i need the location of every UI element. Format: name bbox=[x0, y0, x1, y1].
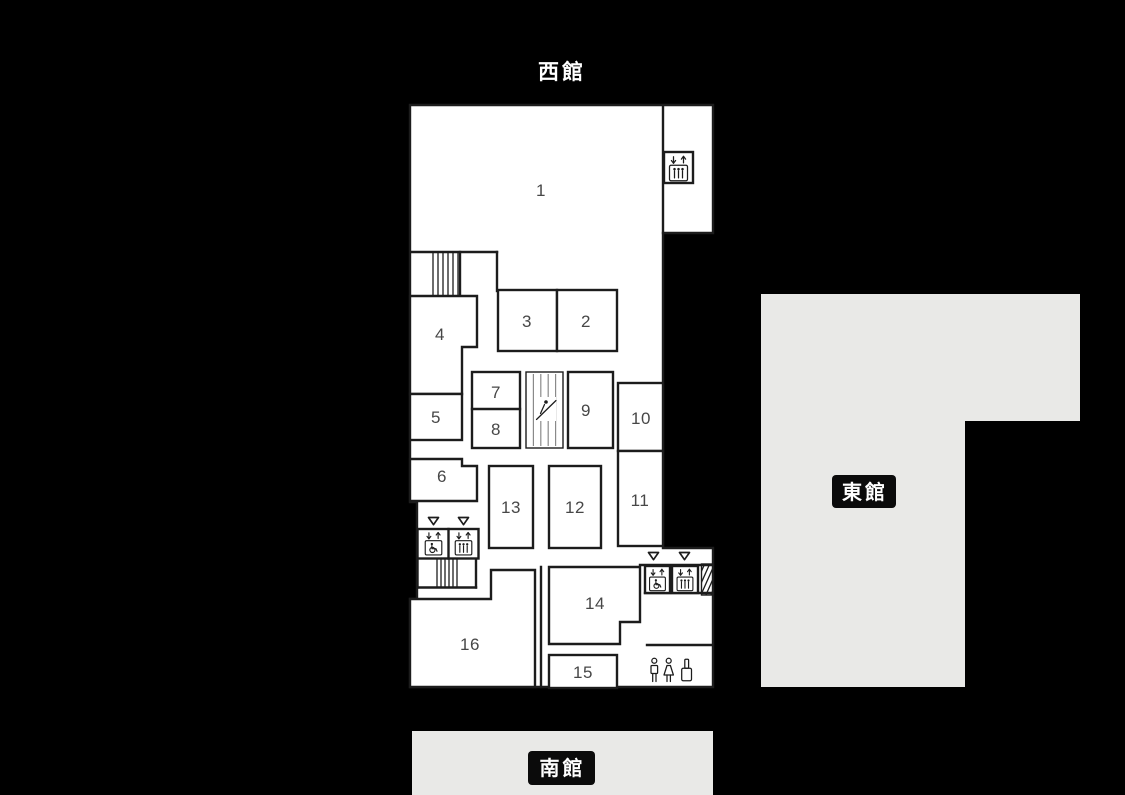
room-10-label: 10 bbox=[631, 409, 651, 428]
room-1-label: 1 bbox=[536, 181, 546, 200]
room-15-label: 15 bbox=[573, 663, 593, 682]
north-elevator bbox=[664, 152, 693, 183]
room-7-label: 7 bbox=[491, 383, 501, 402]
accessible-elevator-box bbox=[645, 566, 670, 593]
room-13-label: 13 bbox=[501, 498, 521, 517]
south-building-label: 南館 bbox=[540, 756, 586, 780]
south-building: 南館 bbox=[412, 731, 713, 795]
room-8-label: 8 bbox=[491, 420, 501, 439]
room-2-label: 2 bbox=[581, 312, 591, 331]
room-12-label: 12 bbox=[565, 498, 585, 517]
room-11-label: 11 bbox=[631, 491, 650, 510]
room-5-label: 5 bbox=[431, 408, 441, 427]
floor-map: 西館 東館 南館 bbox=[0, 0, 1125, 795]
room-16-label: 16 bbox=[460, 635, 480, 654]
west-building-title: 西館 bbox=[538, 60, 586, 84]
room-9-label: 9 bbox=[581, 401, 591, 420]
room-14-label: 14 bbox=[585, 594, 605, 613]
room-4-label: 4 bbox=[435, 325, 445, 344]
room-6-label: 6 bbox=[437, 467, 447, 486]
east-building-label: 東館 bbox=[842, 480, 888, 504]
room-3-label: 3 bbox=[522, 312, 532, 331]
